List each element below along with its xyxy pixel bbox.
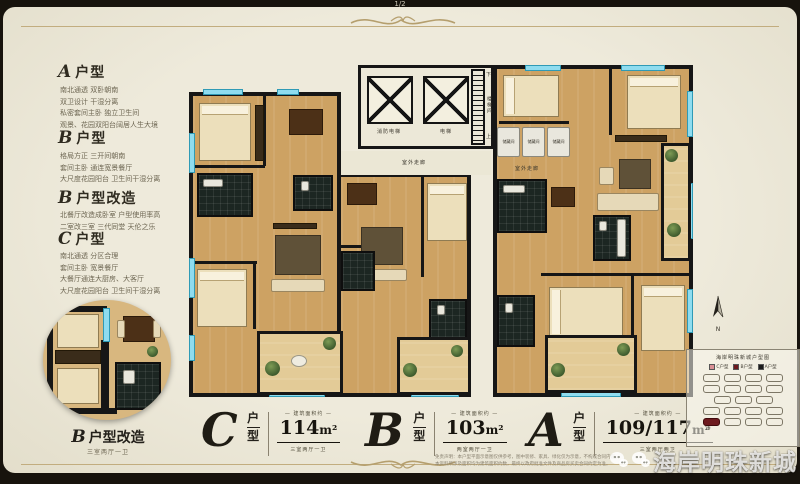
fire-elevator-label: 消防电梯	[359, 128, 419, 135]
window	[687, 289, 693, 333]
section-b-remodel-letter: B	[58, 188, 73, 208]
area-caption: — 建筑面积约 —	[277, 410, 341, 417]
unit-letter: B	[365, 404, 404, 456]
remodel-inset-plan	[43, 300, 171, 420]
bed	[549, 287, 623, 337]
feature-line: 北餐厅改造成卧室 户型使用率高	[60, 210, 190, 222]
inset-bed	[57, 314, 99, 348]
section-b-letter: B	[58, 128, 73, 148]
storage-label: 储藏间	[497, 139, 520, 145]
inset-bed	[57, 368, 99, 404]
storage-label: 储藏间	[522, 139, 545, 145]
feature-line: 双卫设计 干湿分离	[60, 97, 190, 109]
wechat-icon	[609, 450, 629, 470]
inset-window	[103, 308, 110, 342]
legend-title: 海岸明珠新城户型图	[687, 354, 799, 361]
window	[189, 335, 195, 361]
corridor-label: 室外走廊	[369, 159, 459, 166]
sofa	[271, 279, 325, 292]
area-caption: — 建筑面积约 —	[443, 410, 507, 417]
section-c-letter: C	[58, 229, 73, 249]
bed	[199, 103, 251, 161]
window	[525, 65, 561, 71]
storage-label: 储藏间	[547, 139, 570, 145]
feature-line: 南北通透 双卧朝南	[60, 85, 190, 97]
watermark: 海岸明珠新城	[609, 443, 797, 477]
section-a-heading: A户型	[58, 62, 105, 82]
window	[277, 89, 299, 95]
area-value: 114m²	[277, 417, 341, 443]
stair-down-label: 下	[485, 71, 493, 78]
feature-line: 套间主卧 宽景餐厅	[60, 263, 190, 275]
unit-letter: C	[201, 404, 238, 456]
dining-table	[347, 183, 377, 205]
toilet	[599, 221, 607, 231]
tv-cabinet	[615, 135, 667, 142]
huxing-label: 户型	[247, 412, 260, 443]
stair-up-label: 上	[485, 133, 493, 140]
ornament-top-icon	[345, 10, 461, 32]
section-a-suffix: 户型	[75, 65, 105, 81]
toilet	[505, 303, 513, 313]
swatch-b-icon	[733, 364, 739, 370]
feature-line: 私密套间主卧 独立卫生间	[60, 108, 190, 120]
section-a-letter: A	[58, 62, 72, 82]
plant	[451, 345, 463, 357]
bed	[503, 75, 559, 117]
feature-line: 大餐厅通连大厨房、大客厅	[60, 274, 190, 286]
inset-plant	[147, 346, 158, 357]
inset-kitchen	[115, 362, 161, 410]
feature-line: 大尺度花园阳台 卫生间干湿分离	[60, 286, 190, 298]
highlighted-building	[703, 418, 720, 426]
brochure-page: A户型 南北通透 双卧朝南 双卫设计 干湿分离 私密套间主卧 独立卫生间 观景、…	[3, 7, 797, 473]
bed	[427, 183, 467, 241]
section-b-lines: 格局方正 三开间朝南 套间主卧 通连宽景餐厅 大尺度花园阳台 卫生间干湿分离	[60, 151, 190, 186]
plant	[403, 363, 417, 377]
bed	[641, 285, 685, 351]
living-rug	[619, 159, 651, 189]
watermark-text: 海岸明珠新城	[653, 443, 797, 477]
remodel-inset-letter: B	[71, 427, 85, 447]
elevator-label: 电梯	[423, 128, 469, 135]
section-b-suffix: 户型	[76, 131, 106, 147]
armchair	[599, 167, 614, 185]
bathroom	[497, 295, 535, 347]
section-b-remodel-suffix: 户型改造	[76, 191, 136, 207]
section-c-lines: 南北通透 分区合理 套间主卧 宽景餐厅 大餐厅通连大厨房、大客厅 大尺度花园阳台…	[60, 251, 190, 297]
toilet	[301, 181, 309, 191]
divider	[594, 412, 595, 456]
feature-line: 套间主卧 通连宽景餐厅	[60, 163, 190, 175]
unit-card-c: C 户型 — 建筑面积约 — 114m² 三室两厅一卫	[201, 404, 340, 456]
rooms-caption: 两室两厅一卫	[443, 446, 507, 453]
feature-line: 格局方正 三开间朝南	[60, 151, 190, 163]
unit-letter: A	[528, 404, 564, 456]
legend-item-b: B户型	[733, 364, 752, 370]
plant	[551, 363, 565, 377]
remodel-inset-rooms: 三室两厅一卫	[43, 447, 173, 456]
page-indicator: 1/2	[0, 0, 800, 8]
dining-table	[289, 109, 323, 135]
bathroom	[293, 175, 333, 211]
section-a-lines: 南北通透 双卧朝南 双卫设计 干湿分离 私密套间主卧 独立卫生间 观景、花园双阳…	[60, 85, 190, 131]
wechat-icon	[631, 450, 651, 470]
remodel-inset-suffix: 户型改造	[89, 430, 145, 446]
rooms-caption: 三室两厅一卫	[277, 446, 341, 453]
kitchen	[341, 251, 375, 291]
bathtub	[617, 219, 626, 257]
plant	[667, 223, 681, 237]
patio-table	[291, 355, 307, 367]
staircase	[471, 69, 485, 145]
bathroom	[429, 299, 467, 339]
sitemap-legend: 海岸明珠新城户型图 C户型 B户型 A户型 1#	[686, 349, 800, 447]
section-b-heading: B户型	[58, 128, 106, 148]
window	[687, 91, 693, 137]
feature-line: 南北通透 分区合理	[60, 251, 190, 263]
divider	[434, 412, 435, 456]
plant	[617, 343, 630, 356]
tv-cabinet	[273, 223, 317, 229]
section-c-suffix: 户型	[76, 232, 106, 248]
balcony	[661, 143, 691, 261]
plant	[265, 361, 280, 376]
wardrobe	[255, 105, 264, 161]
compass: N	[704, 295, 732, 333]
toilet	[437, 305, 445, 315]
swatch-c-icon	[709, 364, 715, 370]
area-value: 103m²	[443, 417, 507, 443]
plant	[323, 337, 336, 350]
divider	[268, 412, 269, 456]
sofa	[597, 193, 659, 211]
elevator-shaft	[423, 76, 469, 124]
window	[621, 65, 665, 71]
fire-elevator-shaft	[367, 76, 413, 124]
window	[189, 133, 195, 173]
north-arrow-icon	[706, 295, 730, 321]
huxing-label: 户型	[573, 412, 586, 443]
unit-card-b: B 户型 — 建筑面积约 — 103m² 两室两厅一卫	[365, 404, 507, 456]
stairwell-label: 楼梯间	[486, 83, 493, 127]
feature-line: 大尺度花园阳台 卫生间干湿分离	[60, 174, 190, 186]
floor-plan: 消防电梯 电梯 下 楼梯间 上 室外走廊 室外走廊	[189, 63, 695, 401]
huxing-label: 户型	[413, 412, 426, 443]
corridor-label: 室外走廊	[497, 165, 557, 172]
section-c-heading: C户型	[58, 229, 106, 249]
bed	[197, 269, 247, 327]
remodel-inset-title: B户型改造	[43, 427, 173, 447]
swatch-a-icon	[758, 364, 764, 370]
living-rug	[275, 235, 321, 275]
plant	[665, 149, 678, 162]
section-b-remodel-heading: B户型改造	[58, 188, 136, 208]
bed	[627, 75, 681, 129]
dining-table	[551, 187, 575, 207]
photo-frame: 1/2 A户型 南北通透 双卧朝南 双卫设计 干湿分离 私密套间主卧 独立卫生间…	[0, 0, 800, 484]
site-map: 1#	[687, 374, 799, 426]
window	[189, 258, 195, 298]
inset-dining-table	[123, 316, 155, 342]
legend-item-c: C户型	[709, 364, 728, 370]
building-number-label: 1#	[705, 426, 711, 431]
north-label: N	[704, 326, 732, 333]
legend-item-a: A户型	[758, 364, 777, 370]
window	[203, 89, 243, 95]
